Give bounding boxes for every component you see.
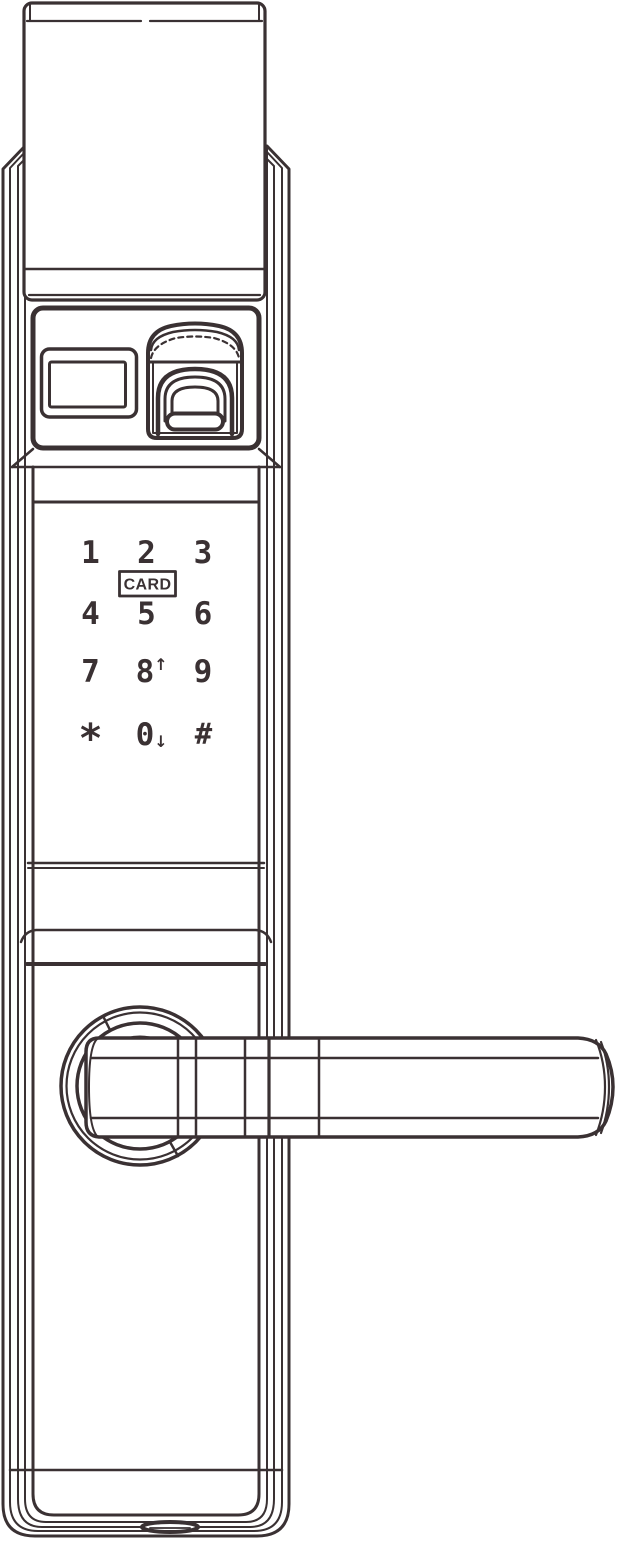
key-star[interactable]: * xyxy=(78,716,102,762)
lever-outline xyxy=(86,1038,613,1137)
key-3[interactable]: 3 xyxy=(194,535,213,571)
usb-port-slot xyxy=(142,1522,198,1532)
scroll-down-icon[interactable]: ↓ xyxy=(154,732,167,751)
door-lock-drawing: 1 2 3 CARD 4 5 6 7 8 ↑ 9 * 0 ↓ # xyxy=(0,0,617,1541)
key-6[interactable]: 6 xyxy=(194,596,213,632)
key-0[interactable]: 0 xyxy=(136,717,155,753)
lock-line-art: 1 2 3 CARD 4 5 6 7 8 ↑ 9 * 0 ↓ # xyxy=(0,0,617,1541)
key-1[interactable]: 1 xyxy=(81,535,100,571)
key-8[interactable]: 8 xyxy=(136,654,155,690)
fingerprint-scanner[interactable] xyxy=(148,324,242,439)
key-5[interactable]: 5 xyxy=(137,596,156,632)
battery-cover xyxy=(24,3,265,300)
key-2[interactable]: 2 xyxy=(137,535,156,571)
key-hash[interactable]: # xyxy=(195,717,213,751)
key-4[interactable]: 4 xyxy=(81,596,100,632)
scroll-up-icon[interactable]: ↑ xyxy=(154,655,167,674)
key-7[interactable]: 7 xyxy=(81,654,100,690)
fingerprint-panel xyxy=(33,308,259,448)
key-9[interactable]: 9 xyxy=(194,654,213,690)
battery-cover-outline xyxy=(24,3,265,300)
usb-port-icon[interactable] xyxy=(142,1522,198,1532)
handle-lever[interactable] xyxy=(86,1038,613,1137)
fingerprint-sensor-bar xyxy=(167,414,223,430)
card-label: CARD xyxy=(124,577,172,594)
